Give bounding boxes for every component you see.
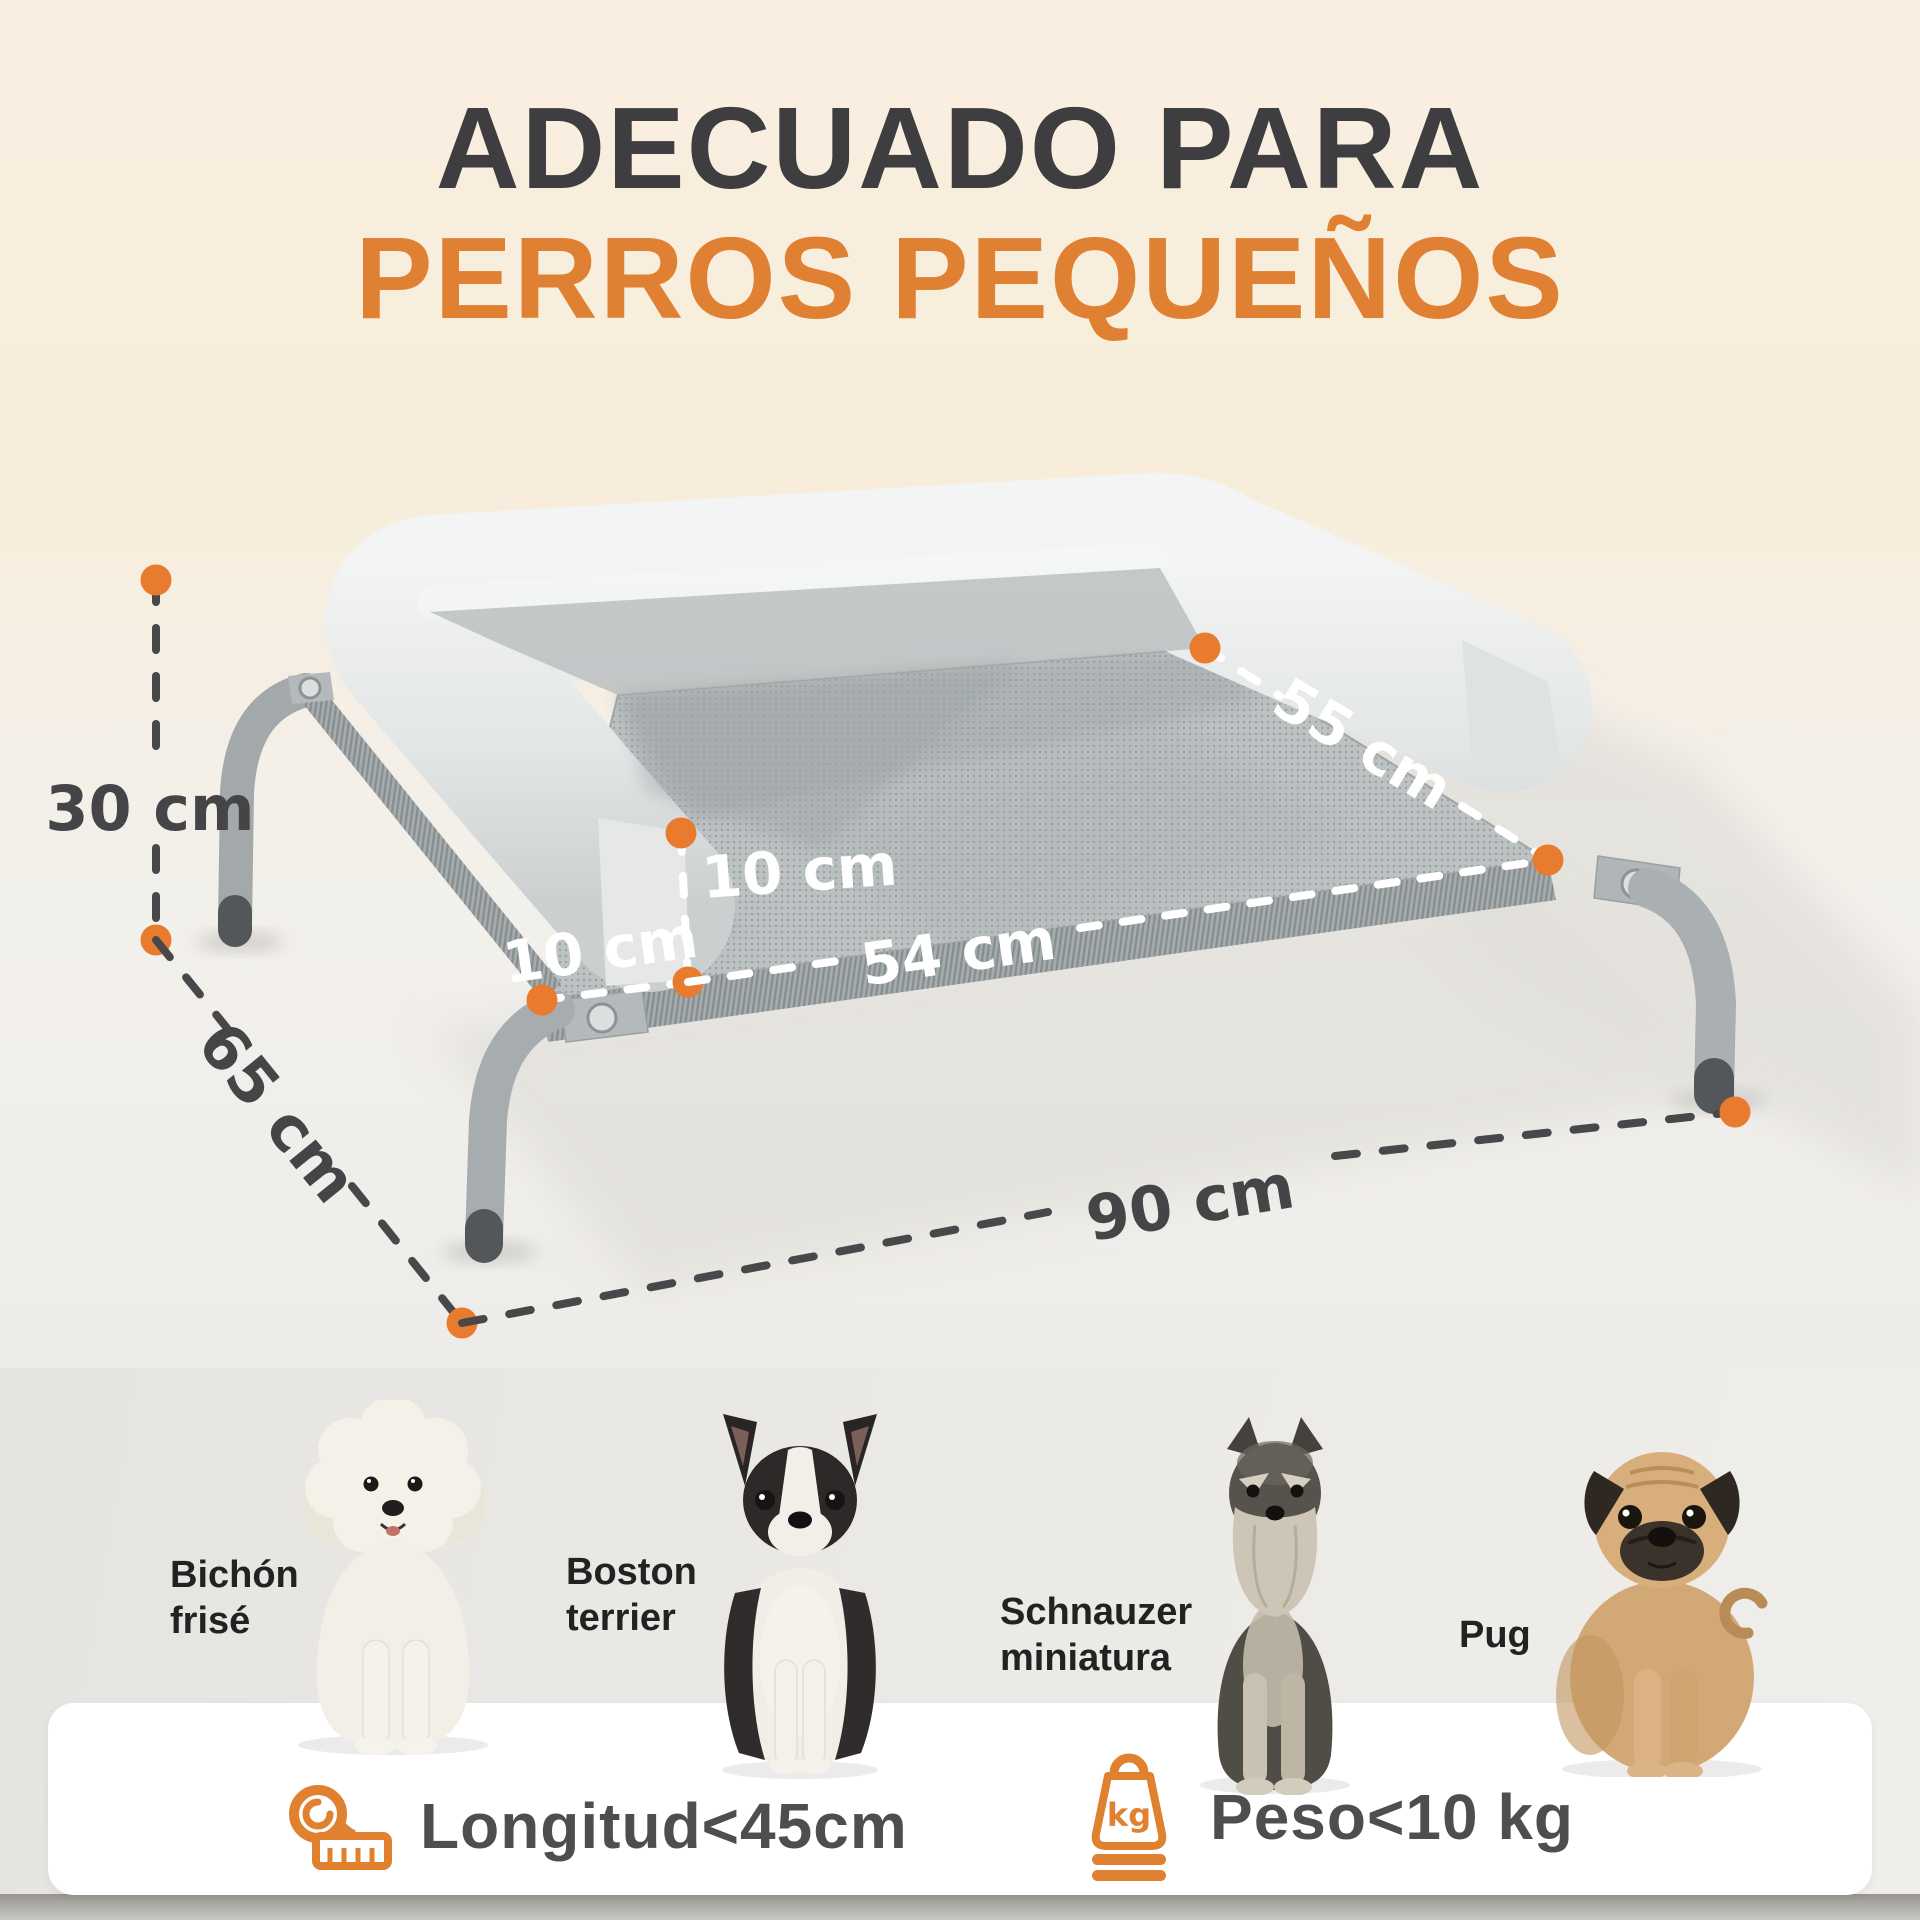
pug-photo: [1530, 1425, 1795, 1777]
dimension-depth-65cm: 65 cm: [156, 940, 478, 1339]
dog-label-boston-terrier: Boston terrier: [566, 1549, 736, 1642]
weight-kg-icon: kg: [1074, 1746, 1184, 1888]
spec-label-weight: Peso<10 kg: [1210, 1780, 1574, 1854]
title-line-1: ADECUADO PARA: [0, 84, 1920, 214]
dimension-label-30cm: 30 cm: [45, 772, 254, 845]
dog-label-bichon-frise: Bichón frisé: [170, 1552, 330, 1645]
spec-label-length: Longitud<45cm: [420, 1789, 908, 1863]
title-line-2: PERROS PEQUEÑOS: [0, 214, 1920, 344]
spec-length: Longitud<45cm: [288, 1780, 908, 1872]
spec-weight: kg Peso<10 kg: [1074, 1746, 1574, 1888]
dimension-label-10cm-vertical: 10 cm: [699, 830, 899, 911]
weight-icon-kg-text: kg: [1107, 1796, 1151, 1834]
product-infographic: ADECUADO PARA PERROS PEQUEÑOS: [0, 0, 1920, 1920]
dimension-label-65cm: 65 cm: [183, 1008, 371, 1217]
screw-icon: [588, 1004, 616, 1032]
dog-label-pug: Pug: [1459, 1612, 1579, 1658]
dog-label-miniature-schnauzer: Schnauzer miniatura: [1000, 1589, 1220, 1682]
title-block: ADECUADO PARA PERROS PEQUEÑOS: [0, 84, 1920, 344]
measuring-tape-icon: [288, 1780, 392, 1872]
